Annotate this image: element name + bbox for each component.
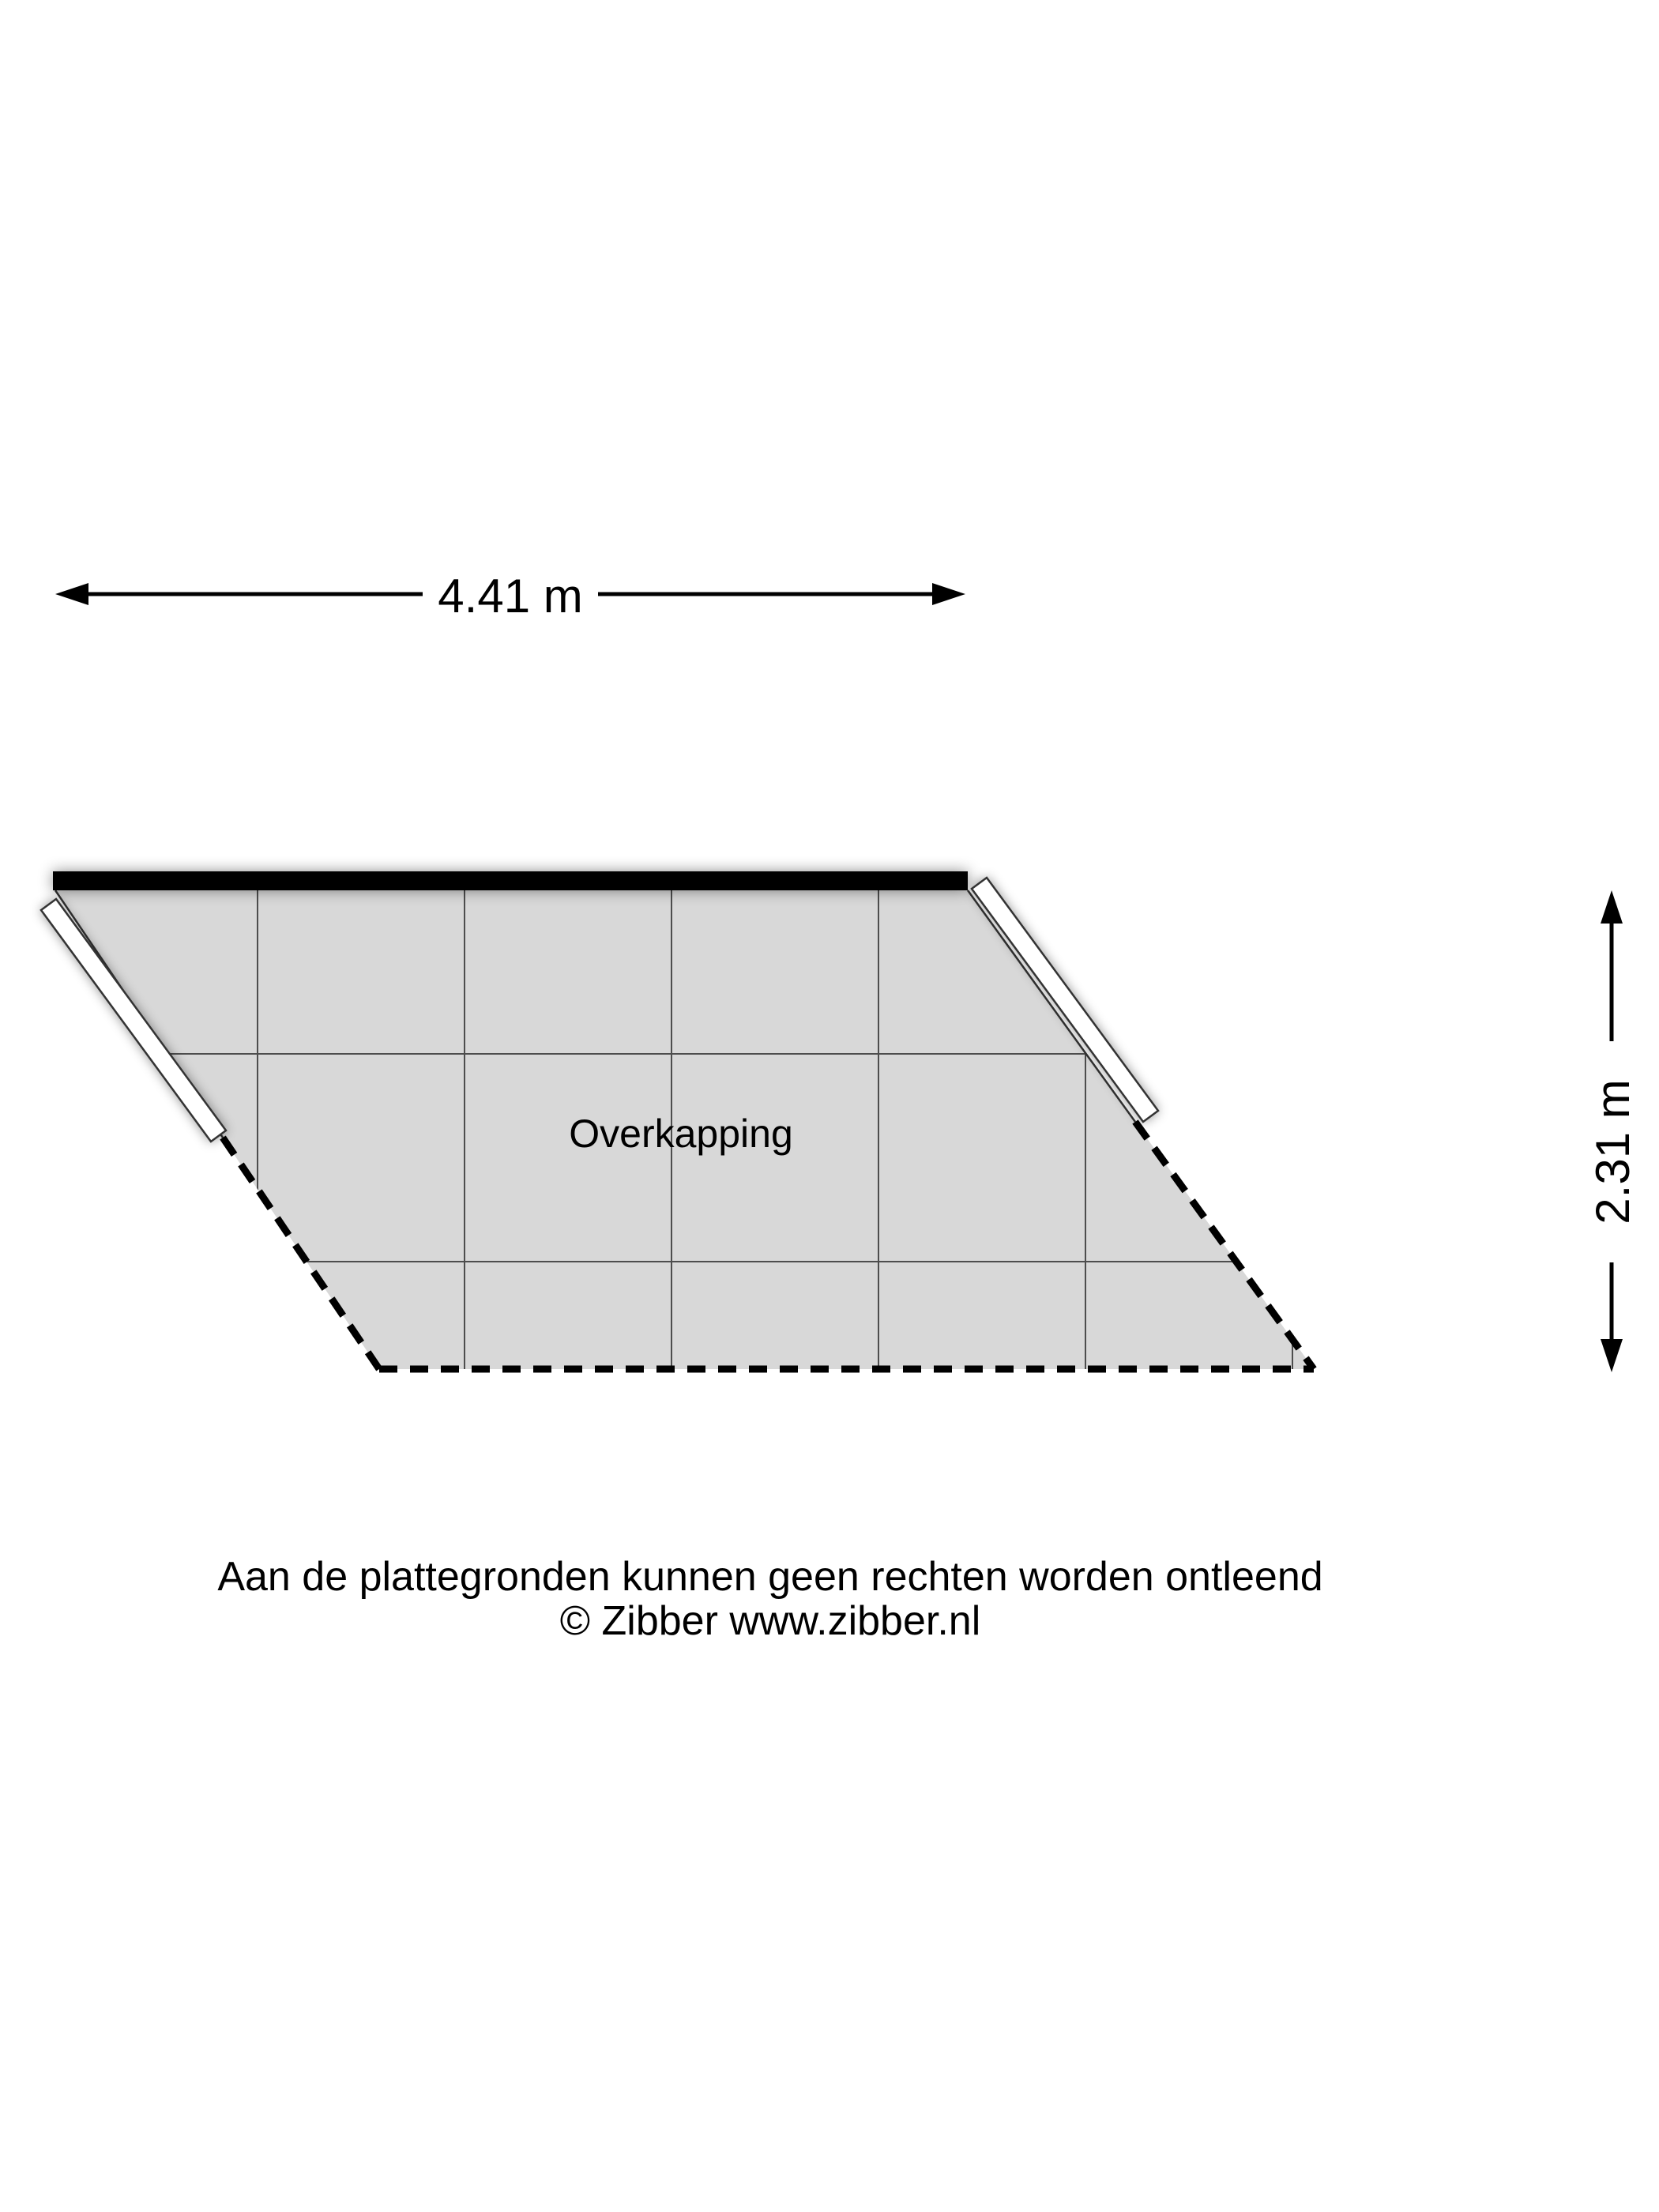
dimension-right-depth-label: 2.31 m bbox=[1586, 1079, 1639, 1224]
dimension-top-width-label: 4.41 m bbox=[438, 570, 582, 623]
footer-disclaimer: Aan de plattegronden kunnen geen rechten… bbox=[217, 1554, 1322, 1600]
room-label: Overkapping bbox=[569, 1112, 793, 1156]
arrow-up-icon bbox=[1601, 890, 1623, 924]
solid-wall-top bbox=[53, 871, 968, 890]
footer: Aan de plattegronden kunnen geen rechten… bbox=[217, 1554, 1322, 1644]
arrow-left-icon bbox=[55, 583, 88, 605]
arrow-down-icon bbox=[1601, 1339, 1623, 1372]
arrow-right-icon bbox=[932, 583, 965, 605]
floorplan-page: { "plan": { "room_label": "Overkapping" … bbox=[0, 0, 1659, 2212]
floorplan-canvas: 4.41 m 2.31 m Overkapping Aan de platteg… bbox=[0, 0, 1659, 2212]
footer-copyright: © Zibber www.zibber.nl bbox=[560, 1598, 981, 1644]
